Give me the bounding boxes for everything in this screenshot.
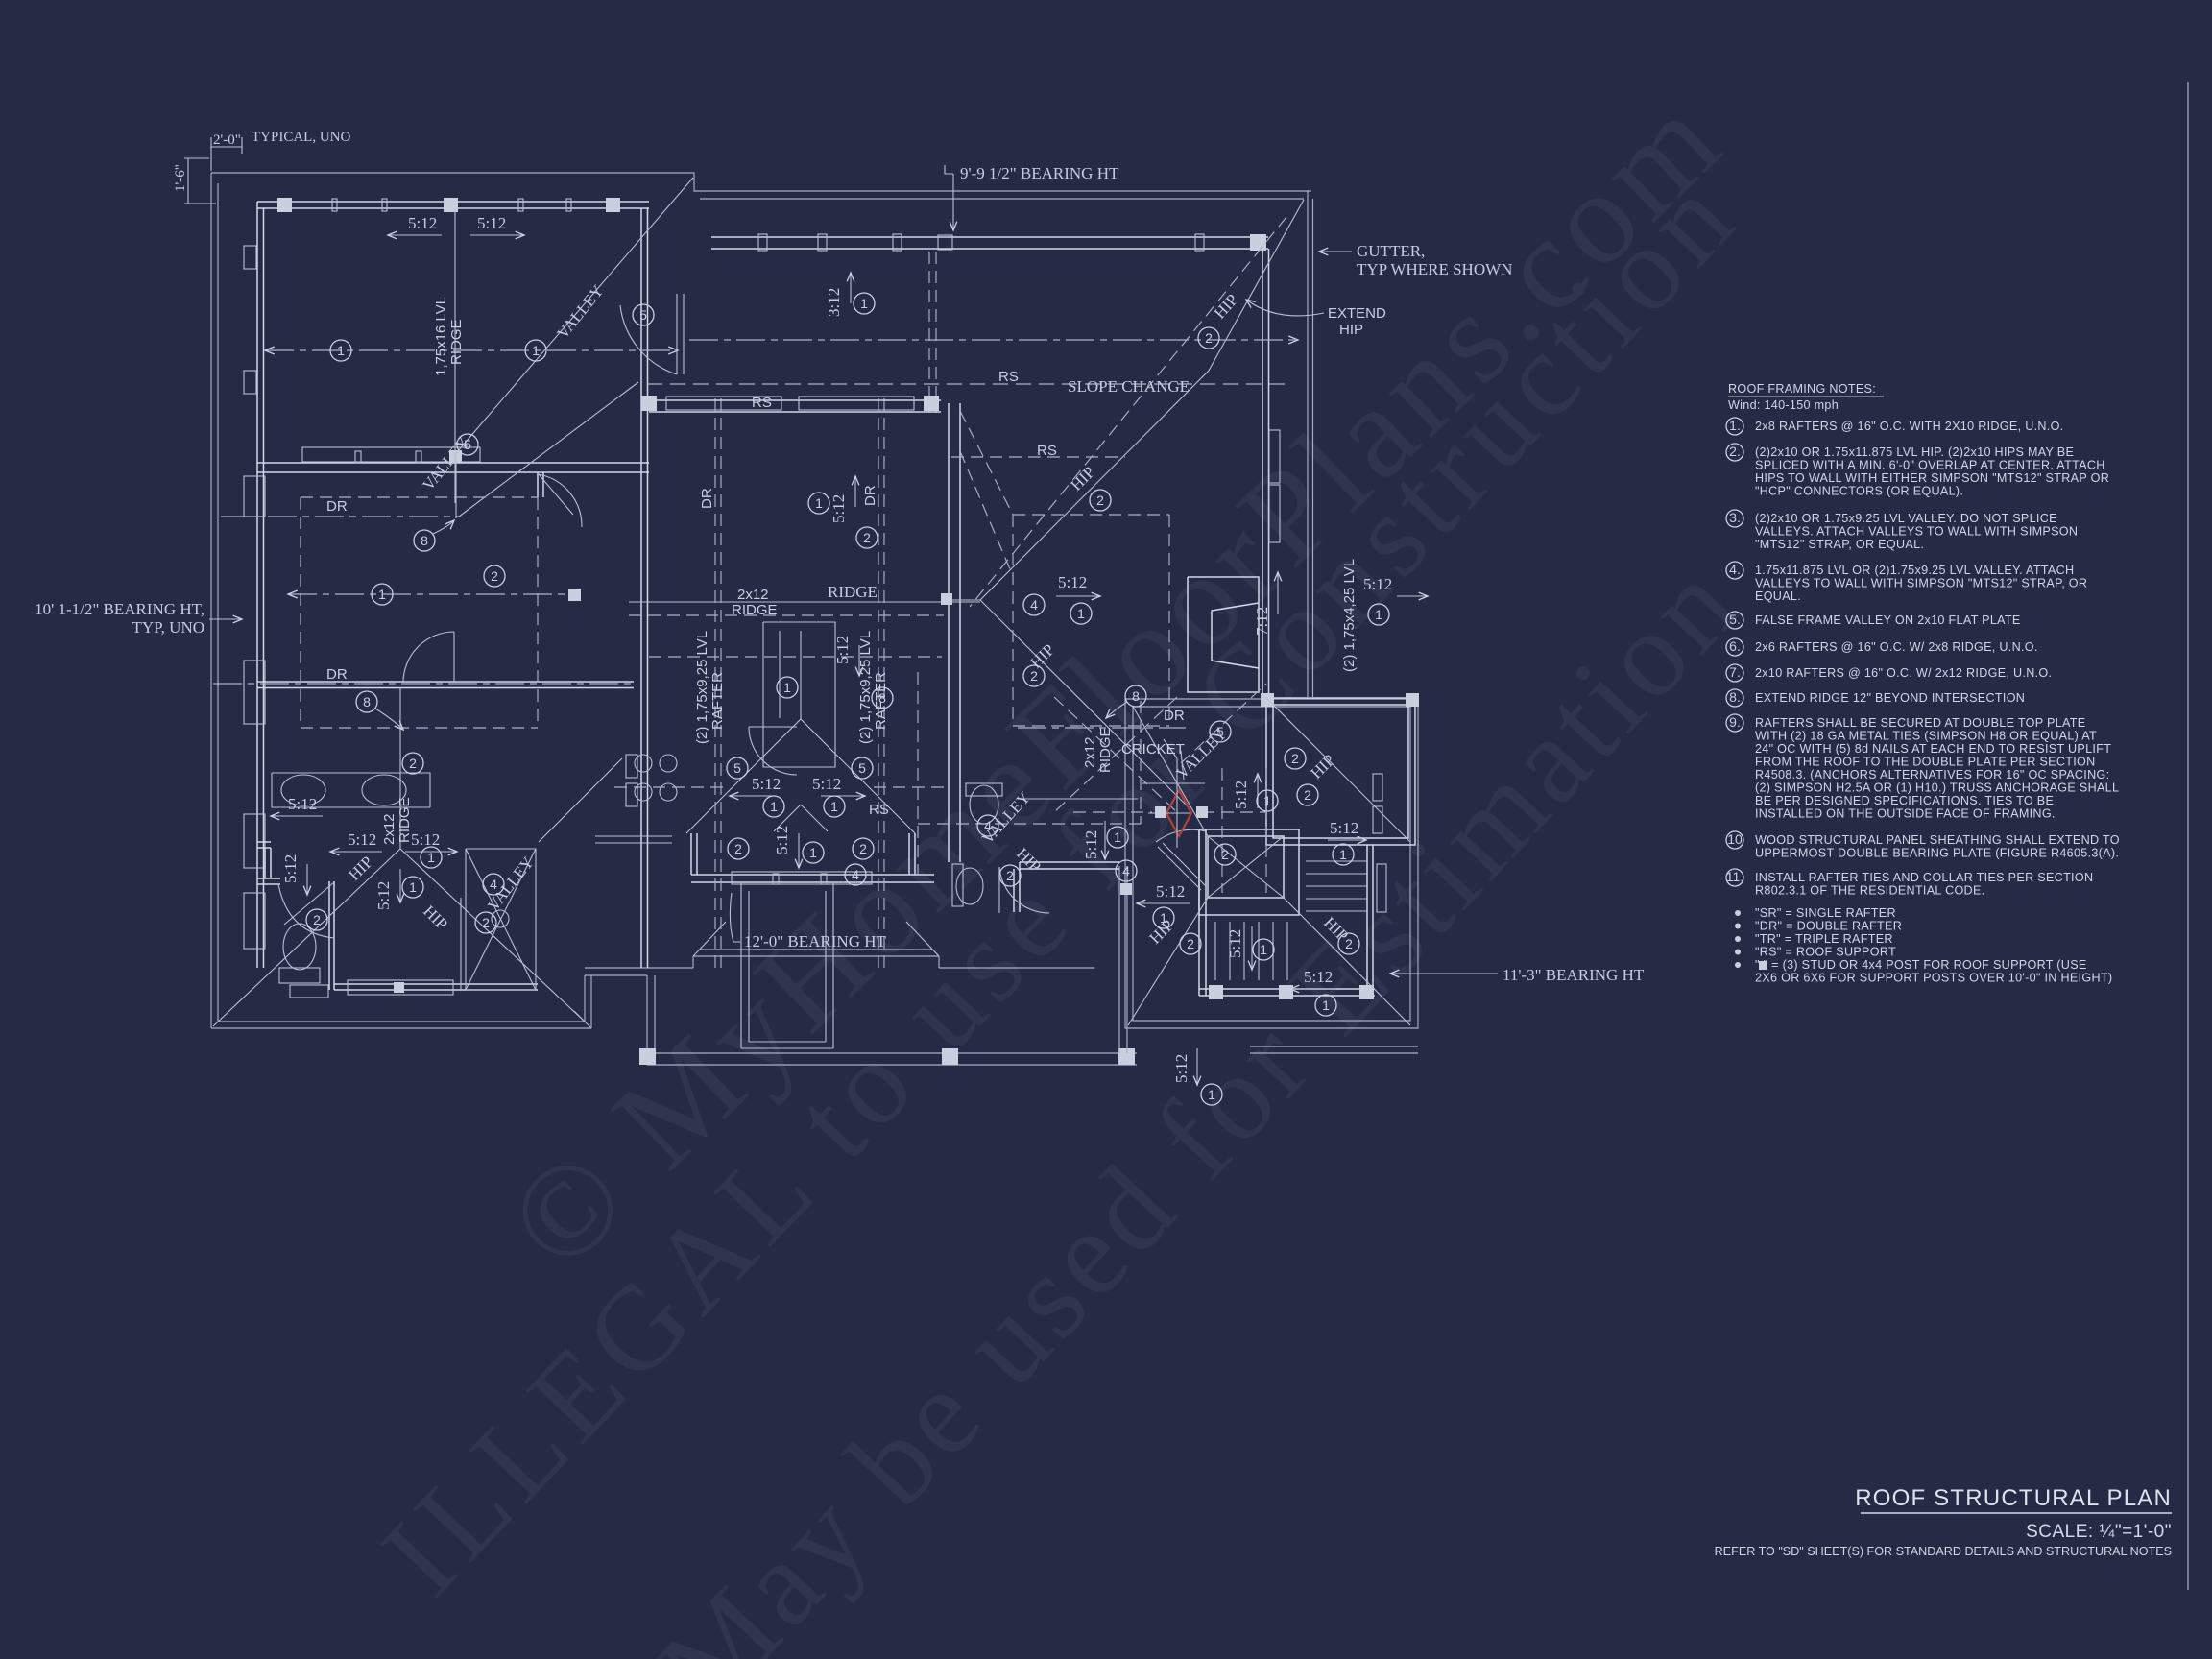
svg-text:8: 8 xyxy=(1132,688,1140,704)
svg-text:11.: 11. xyxy=(1726,869,1743,884)
svg-text:ILLEGAL to use for Constructio: ILLEGAL to use for Construction xyxy=(357,148,1764,1620)
svg-text:INSTALLED ON THE OUTSIDE FACE: INSTALLED ON THE OUTSIDE FACE OF FRAMING… xyxy=(1755,807,2056,821)
svg-text:1: 1 xyxy=(1160,910,1167,926)
svg-text:1: 1 xyxy=(1263,793,1271,808)
svg-text:4: 4 xyxy=(1030,597,1038,613)
svg-text:HIP: HIP xyxy=(1339,322,1363,338)
svg-text:5:12: 5:12 xyxy=(408,214,437,232)
svg-text:DR: DR xyxy=(1164,708,1185,724)
svg-text:VALLEYS. ATTACH VALLEYS TO WA: VALLEYS. ATTACH VALLEYS TO WALL WITH SIM… xyxy=(1755,525,2078,539)
svg-text:1: 1 xyxy=(532,343,540,358)
svg-text:RAFTERS SHALL BE SECURED AT DO: RAFTERS SHALL BE SECURED AT DOUBLE TOP P… xyxy=(1755,716,2085,730)
svg-text:(2)2x10 OR 1.75x9.25 LVL VALLE: (2)2x10 OR 1.75x9.25 LVL VALLEY. DO NOT … xyxy=(1755,512,2057,525)
svg-text:CRICKET: CRICKET xyxy=(1121,741,1185,757)
svg-text:1: 1 xyxy=(809,845,817,860)
svg-text:2: 2 xyxy=(1205,330,1213,346)
svg-text:RAFTER: RAFTER xyxy=(709,672,726,730)
svg-text:GUTTER,: GUTTER, xyxy=(1357,242,1425,260)
svg-text:1: 1 xyxy=(1322,998,1330,1013)
svg-text:8: 8 xyxy=(421,533,428,548)
svg-text:R4508.3. (ANCHORS ALTERNATIVES: R4508.3. (ANCHORS ALTERNATIVES FOR 16" O… xyxy=(1755,768,2109,781)
svg-text:VALLEYS TO WALL WITH SIMPSON ": VALLEYS TO WALL WITH SIMPSON "MTS12" STR… xyxy=(1755,577,2087,590)
svg-text:RS: RS xyxy=(998,369,1019,385)
svg-text:2x12: 2x12 xyxy=(381,813,397,845)
svg-text:1: 1 xyxy=(815,495,823,511)
svg-text:1.: 1. xyxy=(1729,418,1741,433)
svg-text:1'-6": 1'-6" xyxy=(173,164,188,192)
svg-text:5:12: 5:12 xyxy=(833,636,852,664)
svg-text:REFER TO "SD" SHEET(S) FOR STA: REFER TO "SD" SHEET(S) FOR STANDARD DETA… xyxy=(1715,1545,2172,1558)
svg-text:RIDGE: RIDGE xyxy=(828,583,878,601)
svg-text:2: 2 xyxy=(1187,936,1194,951)
svg-text:5:12: 5:12 xyxy=(1058,573,1087,591)
svg-text:DR: DR xyxy=(326,498,348,515)
svg-text:TYP, UNO: TYP, UNO xyxy=(132,618,204,637)
svg-text:DR: DR xyxy=(862,485,878,506)
svg-text:1: 1 xyxy=(409,879,417,895)
svg-text:5:12: 5:12 xyxy=(752,775,781,793)
svg-text:5: 5 xyxy=(464,437,471,452)
svg-text:1: 1 xyxy=(830,799,838,814)
svg-text:2: 2 xyxy=(1291,751,1299,766)
svg-text:2: 2 xyxy=(1006,868,1014,883)
svg-text:TYP WHERE SHOWN: TYP WHERE SHOWN xyxy=(1357,260,1512,278)
svg-text:2: 2 xyxy=(1221,847,1229,862)
svg-text:EQUAL.: EQUAL. xyxy=(1755,589,1801,603)
svg-text:8: 8 xyxy=(363,694,371,709)
svg-text:FROM THE ROOF TO THE DOUBLE PL: FROM THE ROOF TO THE DOUBLE PLATE PER SE… xyxy=(1755,756,2096,769)
svg-text:HIP: HIP xyxy=(1211,291,1241,323)
svg-text:"TR" = TRIPLE RAFTER: "TR" = TRIPLE RAFTER xyxy=(1755,932,1893,946)
svg-text:5: 5 xyxy=(1216,724,1224,739)
svg-text:"SR" = SINGLE RAFTER: "SR" = SINGLE RAFTER xyxy=(1755,906,1896,920)
svg-text:2: 2 xyxy=(491,568,498,584)
svg-text:5:12: 5:12 xyxy=(477,214,506,232)
svg-text:INSTALL RAFTER TIES AND COLLAR: INSTALL RAFTER TIES AND COLLAR TIES PER … xyxy=(1755,871,2093,884)
svg-text:8: 8 xyxy=(878,690,886,706)
svg-text:EXTEND RIDGE 12" BEYOND INTERS: EXTEND RIDGE 12" BEYOND INTERSECTION xyxy=(1755,691,2025,705)
svg-text:4: 4 xyxy=(490,877,497,892)
svg-text:RIDGE: RIDGE xyxy=(448,319,465,365)
svg-text:4.: 4. xyxy=(1729,562,1741,577)
svg-text:DR: DR xyxy=(699,488,715,509)
svg-text:EXTEND: EXTEND xyxy=(1328,305,1386,322)
svg-text:2: 2 xyxy=(409,756,417,771)
svg-text:5:12: 5:12 xyxy=(348,830,376,849)
svg-text:SCALE: ¼"=1'-0": SCALE: ¼"=1'-0" xyxy=(2026,1522,2172,1542)
svg-text:1: 1 xyxy=(1375,607,1382,622)
svg-text:5: 5 xyxy=(733,760,741,776)
svg-text:1: 1 xyxy=(860,296,868,311)
svg-text:4: 4 xyxy=(984,818,992,833)
svg-text:5:12: 5:12 xyxy=(374,881,393,910)
svg-text:24" OC WITH (5) 8d NAILS AT EA: 24" OC WITH (5) 8d NAILS AT EACH END TO … xyxy=(1755,742,2111,756)
svg-text:FALSE FRAME VALLEY ON 2x10 FLA: FALSE FRAME VALLEY ON 2x10 FLAT PLATE xyxy=(1755,613,2021,627)
svg-text:4: 4 xyxy=(1122,863,1130,878)
svg-text:HIP: HIP xyxy=(345,853,376,884)
svg-text:HIPS TO WALL WITH EITHER SIMPS: HIPS TO WALL WITH EITHER SIMPSON "MTS12"… xyxy=(1755,471,2109,485)
svg-text:3:12: 3:12 xyxy=(825,288,843,317)
svg-text:1: 1 xyxy=(427,850,435,865)
svg-text:5:12: 5:12 xyxy=(1330,819,1358,837)
svg-text:1: 1 xyxy=(337,343,345,358)
svg-text:5:12: 5:12 xyxy=(411,830,440,849)
svg-text:1: 1 xyxy=(783,680,791,695)
svg-text:3.: 3. xyxy=(1729,510,1741,525)
svg-text:"RS" = ROOF SUPPORT: "RS" = ROOF SUPPORT xyxy=(1755,946,1896,959)
svg-text:2.: 2. xyxy=(1729,444,1741,459)
svg-text:5:12: 5:12 xyxy=(1172,1054,1190,1083)
svg-text:2X6 OR 6X6 FOR SUPPORT POSTS O: 2X6 OR 6X6 FOR SUPPORT POSTS OVER 10'-0"… xyxy=(1755,972,2112,985)
svg-text:1: 1 xyxy=(1260,942,1267,957)
svg-text:8.: 8. xyxy=(1729,689,1741,705)
svg-text:"MTS12" STRAP, OR EQUAL.: "MTS12" STRAP, OR EQUAL. xyxy=(1755,538,1924,551)
svg-text:2x6 RAFTERS @ 16" O.C. W/ 2x8: 2x6 RAFTERS @ 16" O.C. W/ 2x8 RIDGE, U.N… xyxy=(1755,640,2038,654)
svg-text:4: 4 xyxy=(852,867,859,882)
svg-text:1: 1 xyxy=(770,799,778,814)
svg-text:10' 1-1/2" BEARING HT,: 10' 1-1/2" BEARING HT, xyxy=(35,600,204,618)
svg-text:DR: DR xyxy=(326,666,348,683)
svg-text:R802.3.1 OF THE RESIDENTIAL C: R802.3.1 OF THE RESIDENTIAL CODE. xyxy=(1755,884,1984,898)
svg-text:5:12: 5:12 xyxy=(1363,575,1392,593)
svg-text:1: 1 xyxy=(378,587,386,602)
svg-text:1: 1 xyxy=(1114,829,1121,845)
svg-text:2: 2 xyxy=(859,841,867,856)
svg-text:RS: RS xyxy=(1037,443,1057,459)
svg-text:"DR" = DOUBLE RAFTER: "DR" = DOUBLE RAFTER xyxy=(1755,920,1902,933)
svg-text:10: 10 xyxy=(1727,831,1743,847)
svg-text:1: 1 xyxy=(1208,1087,1215,1102)
svg-text:2: 2 xyxy=(313,912,321,927)
svg-text:"HCP" CONNECTORS (OR EQUAL).: "HCP" CONNECTORS (OR EQUAL). xyxy=(1755,485,1963,498)
svg-text:5: 5 xyxy=(639,307,647,323)
svg-text:(2) SIMPSON H2.5A OR (1) H10.): (2) SIMPSON H2.5A OR (1) H10.) TRUSS ANC… xyxy=(1755,781,2119,795)
svg-text:9.: 9. xyxy=(1729,714,1741,730)
svg-text:ROOF STRUCTURAL PLAN: ROOF STRUCTURAL PLAN xyxy=(1855,1485,2172,1511)
svg-text:5:12: 5:12 xyxy=(1304,968,1333,986)
svg-text:ROOF FRAMING NOTES:: ROOF FRAMING NOTES: xyxy=(1728,382,1876,396)
svg-text:HIP: HIP xyxy=(1067,463,1098,494)
svg-text:2'-0": 2'-0" xyxy=(213,132,241,148)
svg-text:7:12: 7:12 xyxy=(1253,607,1271,636)
svg-text:6.: 6. xyxy=(1729,638,1741,654)
svg-text:1.75x11.875 LVL OR (2)1.75x9.2: 1.75x11.875 LVL OR (2)1.75x9.25 LVL VALL… xyxy=(1755,564,2074,577)
svg-text:5:12: 5:12 xyxy=(812,775,841,793)
svg-text:RS: RS xyxy=(752,395,772,411)
svg-text:Wind: 140-150 mph: Wind: 140-150 mph xyxy=(1728,398,1839,412)
svg-text:11'-3" BEARING HT: 11'-3" BEARING HT xyxy=(1503,966,1645,984)
svg-text:(2) 1,75x4,25 LVL: (2) 1,75x4,25 LVL xyxy=(1341,559,1358,672)
svg-text:5: 5 xyxy=(858,760,866,776)
svg-text:1: 1 xyxy=(1339,847,1347,862)
svg-text:2x12: 2x12 xyxy=(737,587,769,603)
svg-text:2: 2 xyxy=(1304,787,1311,803)
svg-text:9'-9 1/2" BEARING HT: 9'-9 1/2" BEARING HT xyxy=(960,164,1119,182)
svg-text:2: 2 xyxy=(863,530,871,545)
svg-text:VALLEY: VALLEY xyxy=(553,281,607,342)
svg-text:HIP: HIP xyxy=(1307,751,1338,782)
svg-text:5.: 5. xyxy=(1729,612,1741,627)
svg-text:2: 2 xyxy=(734,841,742,856)
svg-text:" " = (3) STUD OR 4x4 POST: " " = (3) STUD OR 4x4 POST FOR ROOF SUPP… xyxy=(1755,958,2087,972)
svg-text:5:12: 5:12 xyxy=(1156,882,1185,901)
svg-text:RIDGE: RIDGE xyxy=(1097,727,1114,773)
svg-text:7.: 7. xyxy=(1729,664,1741,680)
svg-text:5:12: 5:12 xyxy=(1226,929,1244,958)
svg-text:1,75x16 LVL: 1,75x16 LVL xyxy=(433,297,449,376)
svg-text:SLOPE CHANGE: SLOPE CHANGE xyxy=(1068,377,1190,396)
svg-text:2: 2 xyxy=(1030,668,1038,684)
svg-text:5:12: 5:12 xyxy=(773,826,791,854)
svg-text:RIDGE: RIDGE xyxy=(732,602,778,618)
svg-text:2x8 RAFTERS @ 16" O.C. WITH 2X: 2x8 RAFTERS @ 16" O.C. WITH 2X10 RIDGE, … xyxy=(1755,420,2063,433)
svg-text:RS: RS xyxy=(869,802,889,818)
svg-text:2: 2 xyxy=(1096,493,1104,508)
svg-text:1: 1 xyxy=(1077,606,1085,621)
svg-text:5:12: 5:12 xyxy=(281,854,300,883)
svg-text:2: 2 xyxy=(482,915,490,930)
svg-text:(2) 1,75x9,25 LVL: (2) 1,75x9,25 LVL xyxy=(694,631,710,744)
svg-text:5:12: 5:12 xyxy=(829,494,848,523)
svg-text:UPPERMOST DOUBLE BEARING PLATE: UPPERMOST DOUBLE BEARING PLATE (FIGURE R… xyxy=(1755,847,2119,860)
svg-text:BE PER DESIGNED SPECIFICATIONS: BE PER DESIGNED SPECIFICATIONS. TIES TO … xyxy=(1755,794,2054,807)
svg-text:12'-0" BEARING HT: 12'-0" BEARING HT xyxy=(744,932,886,950)
svg-text:WITH (2) 18 GA METAL TIES (SIM: WITH (2) 18 GA METAL TIES (SIMPSON H8 OR… xyxy=(1755,730,2097,743)
svg-text:5:12: 5:12 xyxy=(1232,781,1250,809)
svg-text:HIP: HIP xyxy=(420,902,451,933)
svg-text:TYPICAL, UNO: TYPICAL, UNO xyxy=(252,130,350,145)
svg-text:2: 2 xyxy=(1345,936,1353,951)
svg-text:5:12: 5:12 xyxy=(288,795,317,813)
svg-text:WOOD STRUCTURAL PANEL SHEATHIN: WOOD STRUCTURAL PANEL SHEATHING SHALL EX… xyxy=(1755,833,2120,847)
svg-text:5:12: 5:12 xyxy=(1082,830,1100,859)
svg-text:SPLICED WITH A MIN. 6'-0" OVER: SPLICED WITH A MIN. 6'-0" OVERLAP AT CEN… xyxy=(1755,459,2105,472)
svg-text:(2)2x10 OR 1.75x11.875 LVL HIP: (2)2x10 OR 1.75x11.875 LVL HIP. (2)2x10 … xyxy=(1755,445,2074,459)
svg-text:2x10 RAFTERS @ 16" O.C. W/ 2x1: 2x10 RAFTERS @ 16" O.C. W/ 2x12 RIDGE, U… xyxy=(1755,666,2052,680)
svg-text:2x12: 2x12 xyxy=(1082,736,1098,768)
